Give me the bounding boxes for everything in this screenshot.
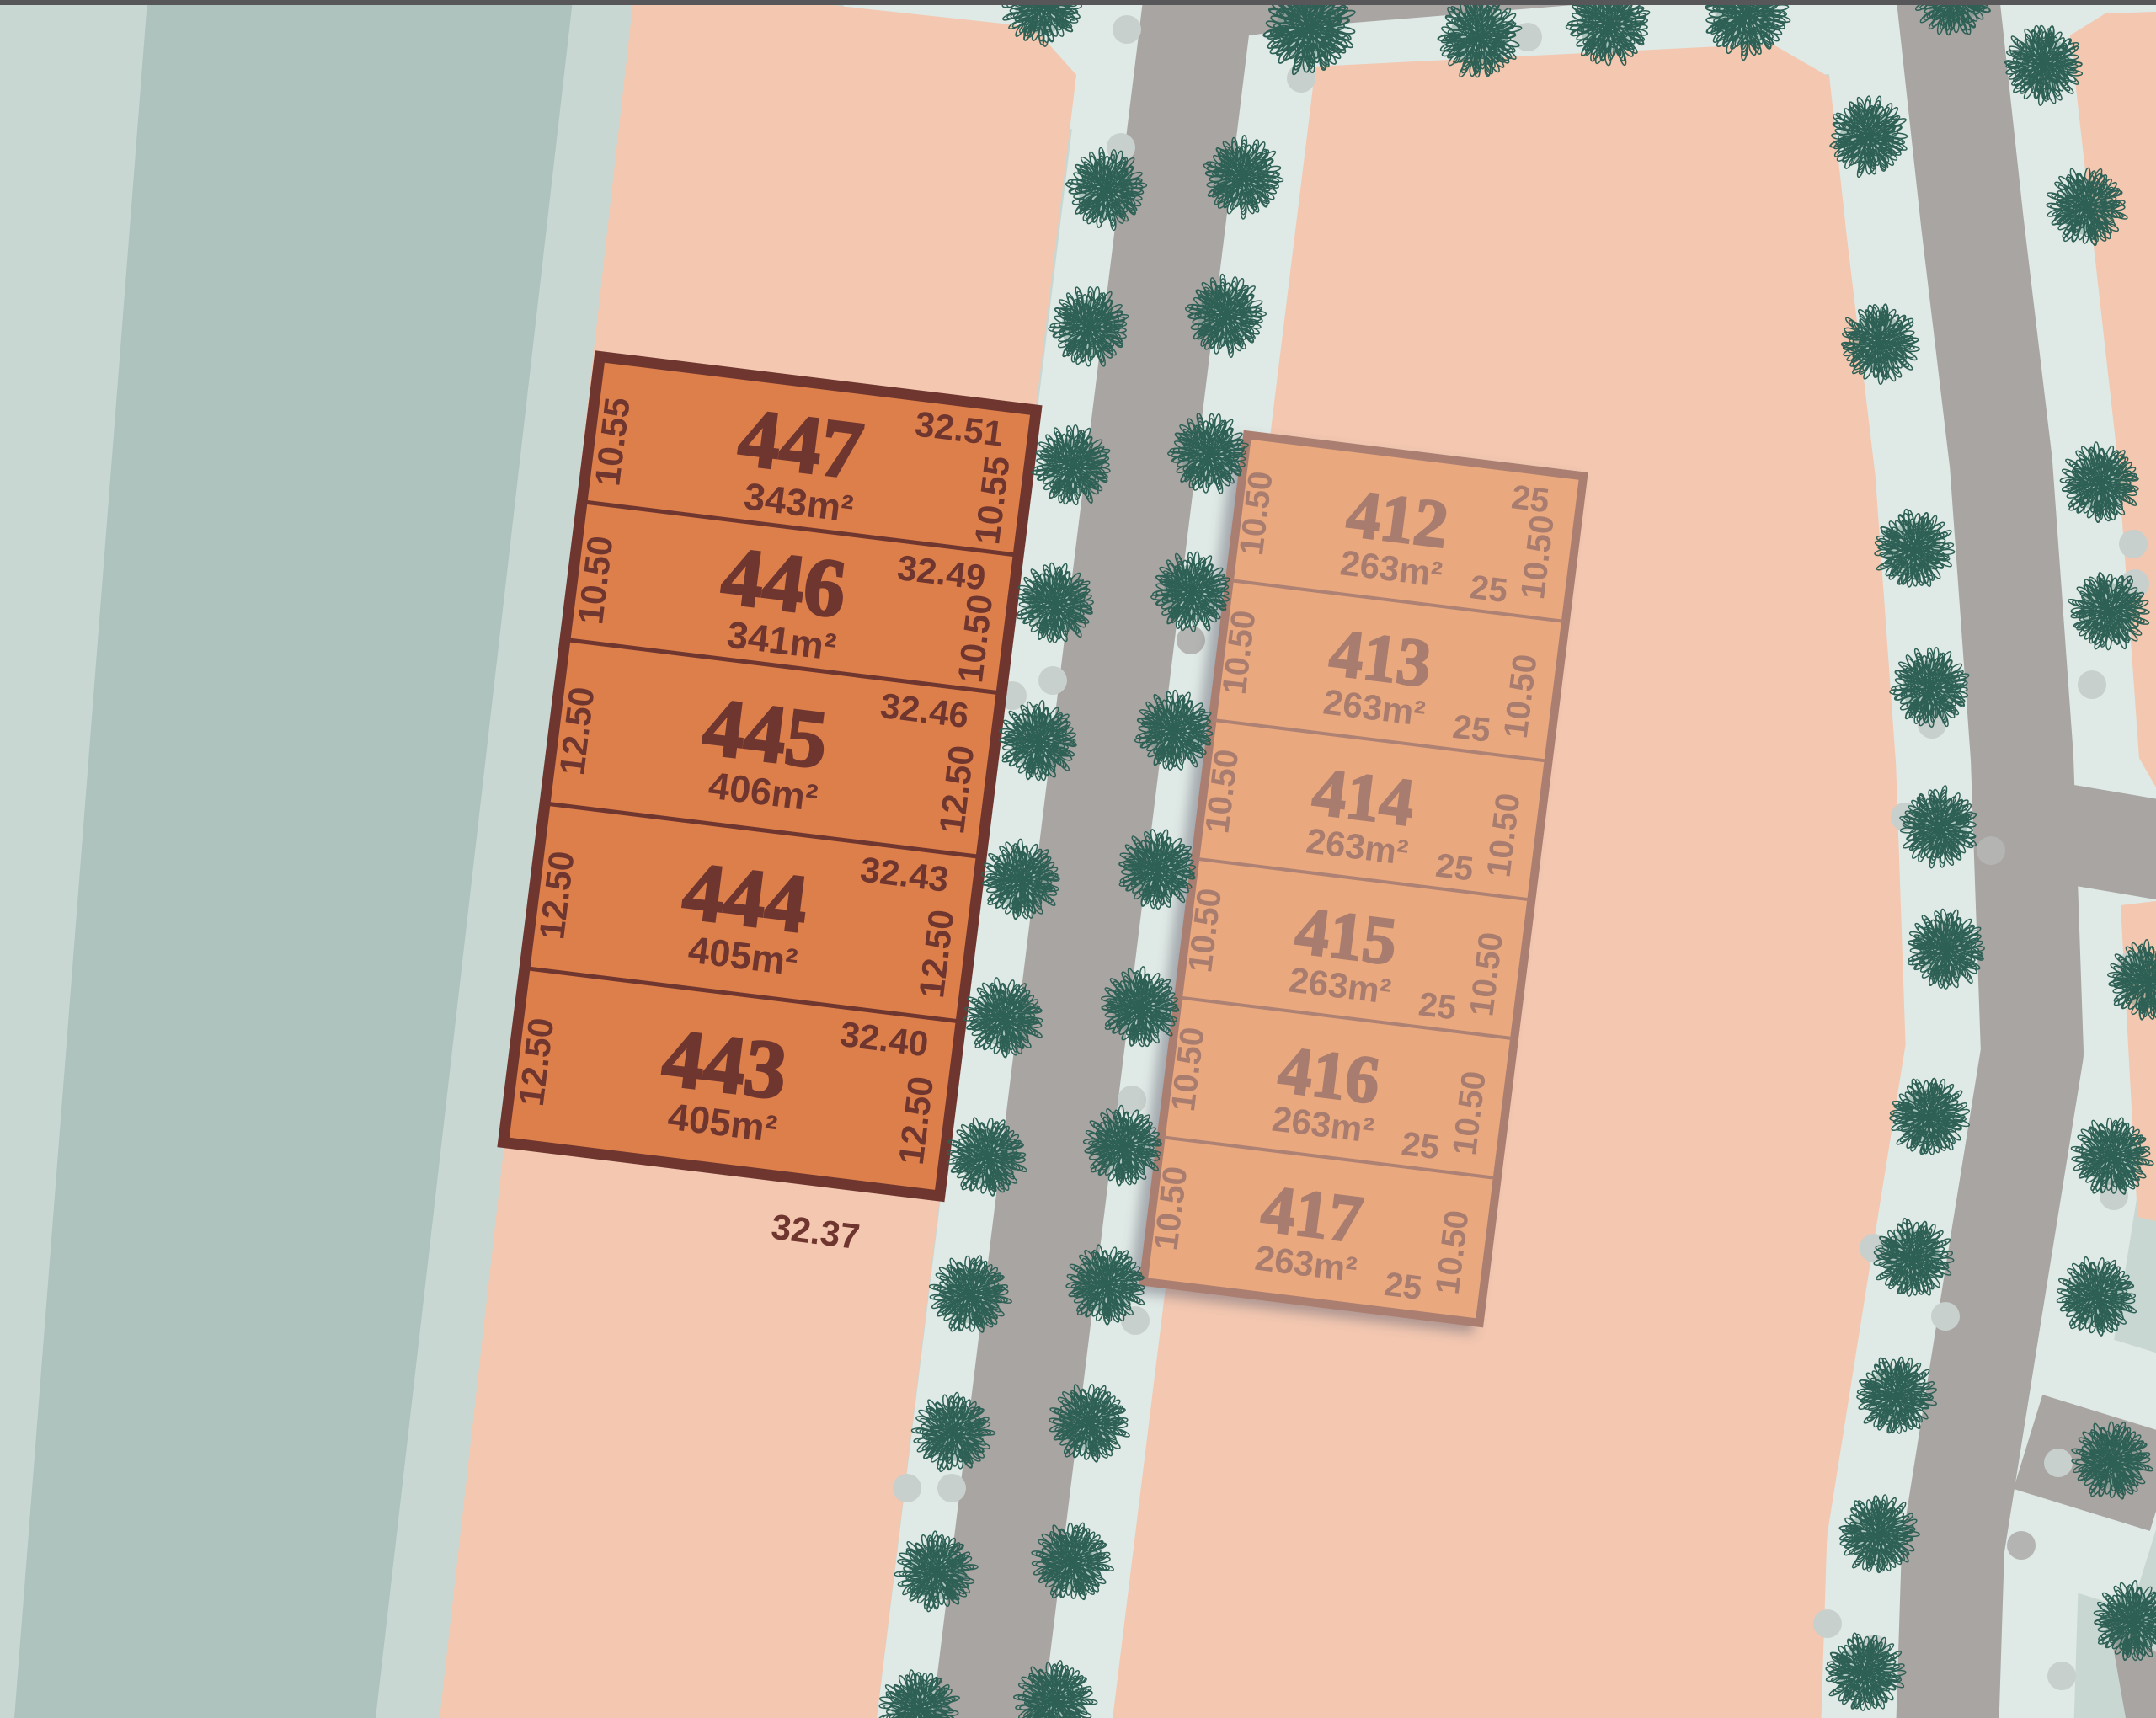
svg-text:25: 25 [1400, 1125, 1442, 1166]
svg-text:25: 25 [1509, 478, 1551, 520]
svg-text:25: 25 [1417, 985, 1459, 1027]
svg-text:25: 25 [1451, 708, 1493, 750]
svg-text:25: 25 [1468, 568, 1510, 610]
svg-text:25: 25 [1433, 847, 1476, 888]
svg-text:25: 25 [1382, 1266, 1424, 1307]
